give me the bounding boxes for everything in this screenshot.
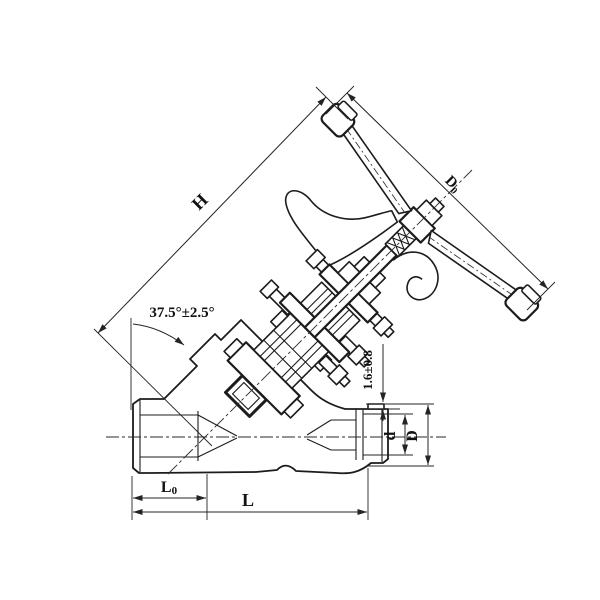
spoke-upper: [332, 126, 425, 219]
spoke-lower: [423, 218, 516, 311]
dimension-label-L: L: [242, 490, 254, 510]
dimension-gap: 1.6±0.8: [360, 344, 400, 421]
dimension-label-D0: D0: [440, 173, 464, 197]
dimension-label-L0: L0: [161, 479, 178, 497]
dimension-label-D: D: [404, 430, 421, 442]
dimension-label-gap: 1.6±0.8: [360, 350, 375, 390]
dimension-label-angle: 37.5°±2.5°: [149, 305, 214, 321]
technical-drawing: H D0 37.5°±2.5° 1.6±0.8 d D L0 L: [0, 0, 600, 600]
dimension-label-H: H: [188, 190, 212, 214]
pipe-stop-tab: [368, 404, 384, 409]
dimension-L0: L0: [132, 474, 207, 520]
dimension-label-d: d: [382, 431, 399, 440]
valve-drawing-canvas: H D0 37.5°±2.5° 1.6±0.8 d D L0 L: [0, 0, 600, 600]
